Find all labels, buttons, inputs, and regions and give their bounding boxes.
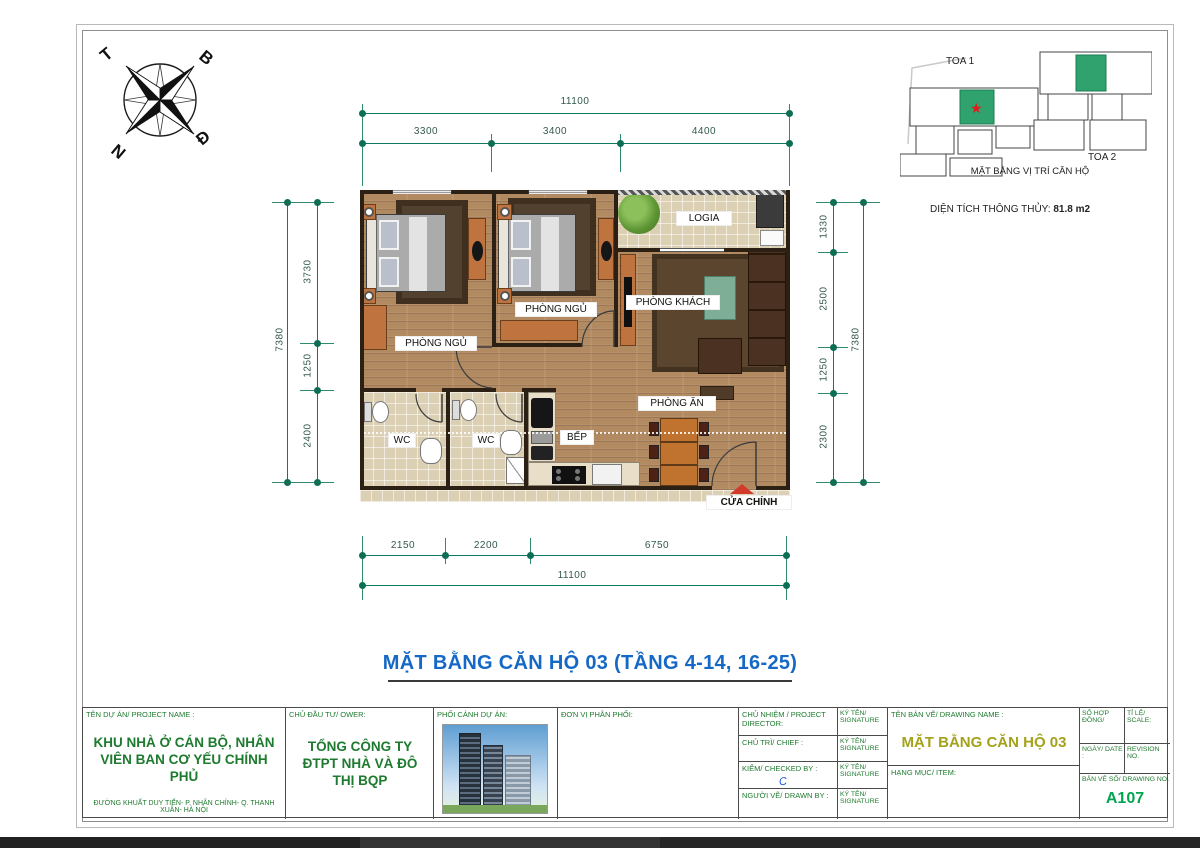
- dim-line-left-overall: [287, 202, 288, 482]
- signature-label: KÝ TÊN/ SIGNATURE: [838, 708, 888, 724]
- checked-label: KIỂM/ CHECKED BY :: [739, 762, 838, 773]
- cell-roles: CHỦ NHIỆM / PROJECT DIRECTOR: CHỦ TRÌ/ C…: [738, 708, 837, 819]
- project-name-label: TÊN DỰ ÁN/ PROJECT NAME :: [83, 708, 285, 719]
- bedroom2-dresser: [598, 218, 614, 280]
- fridge: [592, 464, 622, 485]
- compass-north-letter: B: [195, 47, 217, 69]
- bedroom1-bed: [366, 214, 446, 292]
- signature-label: KÝ TÊN/ SIGNATURE: [838, 736, 888, 752]
- clear-area-note: DIỆN TÍCH THÔNG THỦY: 81.8 m2: [930, 204, 1170, 215]
- project-perspective-image: [442, 724, 548, 814]
- wc2-toilet-tank: [452, 400, 460, 420]
- bottom-bar: [0, 837, 1200, 848]
- checked-signature-mark: C: [778, 776, 788, 789]
- scale-label: TỈ LỆ/ SCALE:: [1125, 708, 1170, 724]
- dim-top-overall: 11100: [545, 96, 605, 107]
- dim-bottom-s3: 6750: [627, 540, 687, 551]
- dim-bottom-s2: 2200: [456, 540, 516, 551]
- bedroom1-dresser: [468, 218, 486, 280]
- bedroom2-bench: [500, 320, 578, 341]
- cell-distributor: ĐƠN VỊ PHÂN PHỐI:: [557, 708, 738, 819]
- dim-top-s2: 3400: [525, 126, 585, 137]
- sheet-title: MẶT BẰNG CĂN HỘ 03 (TẦNG 4-14, 16-25): [380, 652, 800, 675]
- drawn-label: NGƯỜI VẼ/ DRAWN BY :: [739, 789, 838, 800]
- dim-line-right-overall: [863, 202, 864, 482]
- main-door: [708, 438, 760, 490]
- wc1-toilet-tank: [364, 402, 372, 422]
- dim-top-s1: 3300: [396, 126, 456, 137]
- dim-right-overall: 7380: [851, 318, 862, 362]
- cell-signatures: KÝ TÊN/ SIGNATURE KÝ TÊN/ SIGNATURE KÝ T…: [837, 708, 887, 819]
- chief-label: CHỦ TRÌ/ CHIEF :: [739, 736, 838, 747]
- sofa: [748, 250, 786, 366]
- title-block: TÊN DỰ ÁN/ PROJECT NAME : KHU NHÀ Ở CÁN …: [82, 707, 1168, 818]
- perspective-label: PHỐI CẢNH DỰ ÁN:: [434, 708, 557, 719]
- compass-rose-icon: B Đ N T: [98, 38, 222, 162]
- stove-icon: [552, 466, 586, 484]
- dim-left-s1: 3730: [303, 250, 314, 294]
- logia-shelf: [760, 230, 784, 246]
- dim-right-s4: 2300: [819, 415, 830, 459]
- wc2-shower-tray: [506, 457, 526, 484]
- room-label-bedroom1: PHÒNG NGỦ: [395, 336, 477, 351]
- plant-icon: [618, 192, 660, 234]
- drawing-number: A107: [1080, 790, 1170, 808]
- dim-right-s1: 1330: [819, 205, 830, 249]
- wc1-toilet-icon: [372, 401, 389, 423]
- room-label-wc1: WC: [388, 433, 416, 448]
- contract-label: SỐ HỢP ĐỒNG/: [1080, 708, 1124, 724]
- bedroom1-wardrobe: [361, 305, 387, 350]
- owner-name: TỔNG CÔNG TY ĐTPT NHÀ VÀ ĐÔ THỊ BQP: [290, 738, 430, 789]
- dim-left-s3: 2400: [303, 414, 314, 458]
- unit-star-icon: ★: [970, 100, 983, 116]
- dim-left-overall: 7380: [275, 318, 286, 362]
- wc2-door: [492, 390, 526, 426]
- director-label: CHỦ NHIỆM / PROJECT DIRECTOR:: [739, 708, 838, 728]
- entrance-arrow-icon: [730, 484, 754, 494]
- dining-table: [660, 418, 698, 486]
- floor-plan: PHÒNG NGỦ PHÒNG NGỦ LOGIA PHÒNG KHÁCH PH…: [360, 190, 790, 502]
- bedroom2-nightstand: [497, 288, 512, 304]
- room-label-main-door: CỬA CHÍNH: [706, 495, 792, 510]
- dim-line-top-segments: [362, 143, 789, 144]
- wc1-door: [412, 390, 446, 426]
- logia-railing: [616, 190, 786, 195]
- compass-south-letter: N: [107, 141, 129, 162]
- room-label-bedroom2: PHÒNG NGỦ: [515, 302, 597, 317]
- distributor-label: ĐƠN VỊ PHÂN PHỐI:: [558, 708, 738, 719]
- item-label: HẠNG MỤC/ ITEM:: [888, 766, 1080, 777]
- sliding-door: [660, 248, 724, 252]
- dining-chair: [649, 445, 659, 459]
- bedroom1-window: [392, 190, 452, 194]
- drawing-name-label: TÊN BẢN VẼ/ DRAWING NAME :: [888, 708, 1080, 719]
- armchair: [698, 338, 742, 374]
- dim-line-top-overall: [362, 113, 789, 114]
- dining-chair: [649, 468, 659, 482]
- compass-west-letter: T: [98, 43, 117, 65]
- bedroom2-window: [528, 190, 588, 194]
- owner-label: CHỦ ĐẦU TƯ/ OWER:: [286, 708, 433, 719]
- project-address: ĐƯỜNG KHUẤT DUY TIẾN- P. NHÂN CHÍNH- Q. …: [85, 800, 283, 814]
- dim-line-bottom-overall: [362, 585, 786, 586]
- wc2-toilet-icon: [460, 399, 477, 421]
- signature-label: KÝ TÊN/ SIGNATURE: [838, 762, 888, 778]
- kitchen-oven: [531, 446, 553, 460]
- sheet-title-underline: [388, 680, 792, 682]
- logia-equipment: [756, 194, 784, 228]
- dim-line-right-segments: [833, 202, 834, 482]
- cell-owner: CHỦ ĐẦU TƯ/ OWER: TỔNG CÔNG TY ĐTPT NHÀ …: [285, 708, 433, 819]
- bedroom2-bed: [498, 214, 576, 292]
- dim-line-bottom-segments: [362, 555, 786, 556]
- room-label-logia: LOGIA: [676, 211, 732, 226]
- revision-label: REVISION NO.: [1125, 744, 1170, 760]
- project-name: KHU NHÀ Ở CÁN BỘ, NHÂN VIÊN BAN CƠ YẾU C…: [89, 734, 279, 785]
- dim-left-s2: 1250: [303, 344, 314, 388]
- cell-drawing-name: TÊN BẢN VẼ/ DRAWING NAME : MẶT BẰNG CĂN …: [887, 708, 1079, 819]
- bedroom2-nightstand: [497, 204, 512, 220]
- tower2-label: TOA 2: [1088, 152, 1116, 163]
- drawing-sheet: B Đ N T ★: [0, 0, 1200, 848]
- signature-label: KÝ TÊN/ SIGNATURE: [838, 789, 888, 805]
- room-label-dining: PHÒNG ĂN: [638, 396, 716, 411]
- dim-bottom-overall: 11100: [542, 570, 602, 581]
- drawing-name: MẶT BẰNG CĂN HỘ 03: [888, 734, 1080, 751]
- highlighted-unit-tower2: [1076, 55, 1106, 91]
- dim-right-s2: 2500: [819, 277, 830, 321]
- room-label-kitchen: BẾP: [560, 430, 594, 445]
- drawing-no-label: BẢN VẼ SỐ/ DRAWING NO.: [1080, 774, 1170, 783]
- clear-area-value: 81.8 m2: [1053, 204, 1090, 215]
- dim-top-s3: 4400: [674, 126, 734, 137]
- dim-right-s3: 1250: [819, 348, 830, 392]
- room-label-wc2: WC: [472, 433, 500, 448]
- cell-perspective: PHỐI CẢNH DỰ ÁN:: [433, 708, 557, 819]
- clear-area-label: DIỆN TÍCH THÔNG THỦY:: [930, 204, 1051, 215]
- room-label-living: PHÒNG KHÁCH: [626, 295, 720, 310]
- cell-drawing-meta: SỐ HỢP ĐỒNG/ TỈ LỆ/ SCALE: NGÀY/ DATE : …: [1079, 708, 1169, 819]
- cell-project-name: TÊN DỰ ÁN/ PROJECT NAME : KHU NHÀ Ở CÁN …: [83, 708, 285, 819]
- key-plan-caption: MẶT BẰNG VỊ TRÍ CĂN HỘ: [930, 166, 1130, 177]
- compass-east-letter: Đ: [192, 127, 214, 149]
- dim-bottom-s1: 2150: [373, 540, 433, 551]
- wc1-sink-icon: [420, 438, 442, 464]
- kitchen-sink: [531, 398, 553, 428]
- tower1-label: TOA 1: [946, 56, 974, 67]
- date-label: NGÀY/ DATE :: [1080, 744, 1124, 760]
